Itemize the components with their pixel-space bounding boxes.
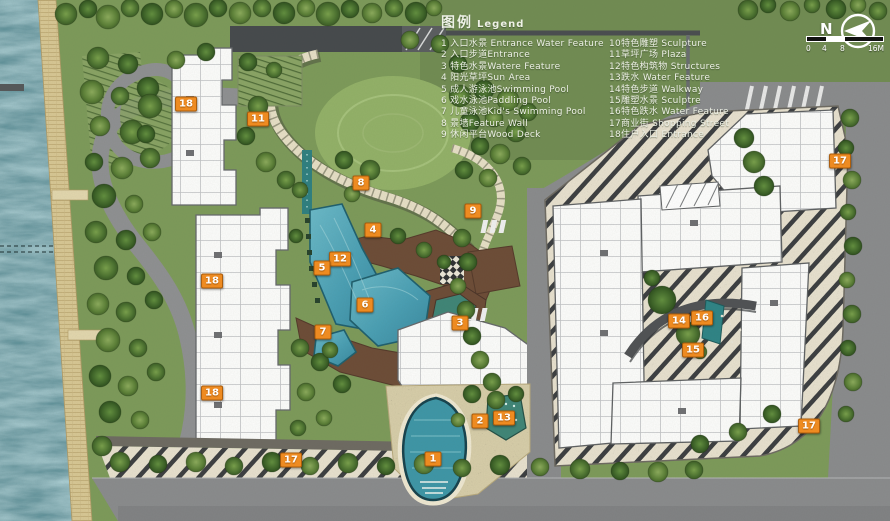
scale-bar: 04816M [806, 36, 888, 54]
legend-item: 13跌水 Water Feature [609, 73, 729, 84]
legend: 图例Legend 1 入口水景 Entrance Water Feature2 … [441, 12, 746, 142]
scale-bar-segments [806, 36, 884, 42]
scale-tick-label: 4 [822, 44, 827, 53]
legend-column-2: 10特色雕塑 Sculpture11草坪广场 Plaza12特色构筑物 Stru… [609, 39, 729, 142]
map-marker-17: 17 [829, 154, 851, 169]
map-marker-12: 12 [329, 252, 351, 267]
map-marker-5: 5 [314, 261, 331, 276]
map-marker-8: 8 [353, 176, 370, 191]
scale-tick-label: 8 [840, 44, 845, 53]
map-marker-2: 2 [472, 414, 489, 429]
map-marker-7: 7 [315, 325, 332, 340]
map-marker-3: 3 [452, 316, 469, 331]
map-marker-4: 4 [365, 223, 382, 238]
legend-item: 7 儿童泳池Kid's Swimming Pool [441, 107, 599, 118]
map-marker-18: 18 [175, 97, 197, 112]
legend-item: 15雕塑水景 Sculptre [609, 96, 729, 107]
map-marker-18: 18 [201, 274, 223, 289]
legend-item: 11草坪广场 Plaza [609, 50, 729, 61]
legend-item: 6 戏水泳池Paddling Pool [441, 96, 599, 107]
map-marker-15: 15 [682, 343, 704, 358]
map-marker-13: 13 [493, 411, 515, 426]
map-marker-9: 9 [465, 204, 482, 219]
legend-item: 5 成人游泳池Swimming Pool [441, 85, 599, 96]
legend-title: 图例Legend [441, 12, 746, 32]
legend-item: 9 休闲平台Wood Deck [441, 130, 599, 141]
legend-item: 14特色步道 Walkway [609, 85, 729, 96]
legend-item: 10特色雕塑 Sculpture [609, 39, 729, 50]
legend-item: 3 特色水景Watere Feature [441, 62, 599, 73]
scale-bar-labels: 04816M [806, 44, 888, 54]
map-marker-17: 17 [798, 419, 820, 434]
legend-item: 18住户入口 Entrance [609, 130, 729, 141]
legend-item: 12特色构筑物 Structures [609, 62, 729, 73]
landscape-site-plan: 181189412567318181416152131171717 图例Lege… [0, 0, 890, 521]
map-marker-17: 17 [280, 453, 302, 468]
legend-item: 4 阳光草坪Sun Area [441, 73, 599, 84]
scale-tick-label: 16M [868, 44, 884, 53]
map-marker-1: 1 [425, 452, 442, 467]
map-marker-14: 14 [668, 314, 690, 329]
legend-item: 16特色跌水 Water Feature [609, 107, 729, 118]
legend-column-1: 1 入口水景 Entrance Water Feature2 入口步道Entra… [441, 39, 599, 142]
legend-item: 17商业街 Shopping Street [609, 119, 729, 130]
map-marker-16: 16 [691, 311, 713, 326]
map-marker-18: 18 [201, 386, 223, 401]
legend-item: 1 入口水景 Entrance Water Feature [441, 39, 599, 50]
legend-title-zh: 图例 [441, 15, 473, 31]
map-marker-6: 6 [357, 298, 374, 313]
scale-tick-label: 0 [806, 44, 811, 53]
legend-title-en: Legend [477, 19, 524, 30]
map-marker-11: 11 [247, 112, 269, 127]
legend-item: 2 入口步道Entrance [441, 50, 599, 61]
legend-item: 8 景墙Feature Wall [441, 119, 599, 130]
